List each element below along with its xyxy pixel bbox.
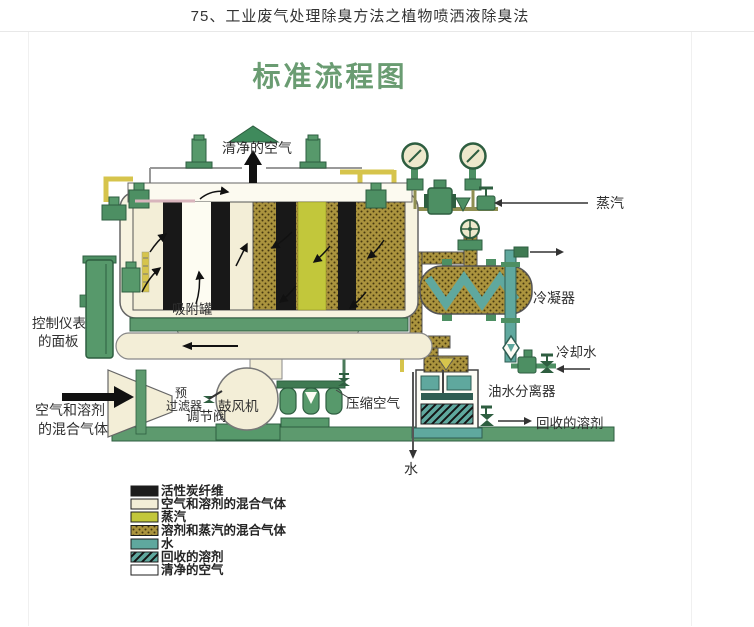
oil-water-separator — [409, 356, 532, 459]
label-control-panel-2: 的面板 — [38, 334, 79, 349]
carbon-fiber-bed — [211, 202, 230, 310]
label-condenser: 冷凝器 — [533, 290, 575, 306]
valve-icon — [518, 357, 536, 373]
label-inlet-gas-1: 空气和溶剂 — [35, 402, 105, 418]
solvent-arrow-icon — [524, 417, 532, 425]
article-page: 75、工业废气处理除臭方法之植物喷洒液除臭法 标准流程图 — [0, 0, 754, 627]
process-flow-diagram: 标准流程图 — [0, 0, 754, 627]
water-drain-arrow-icon — [409, 450, 417, 459]
label-clean-air: 清净的空气 — [222, 140, 292, 156]
label-pre-filter-2: 过滤器 — [166, 399, 202, 413]
cooling-water-arrow-icon — [556, 365, 564, 373]
label-recovered-solvent: 回收的溶剂 — [536, 416, 604, 431]
label-adsorption-tank: 吸附罐 — [172, 302, 213, 317]
compressed-air-unit — [277, 374, 352, 427]
carbon-fiber-bed — [276, 202, 296, 310]
legend-swatch-carbon — [131, 486, 158, 496]
control-panel — [80, 256, 116, 358]
legend-label: 溶剂和蒸汽的混合气体 — [161, 523, 287, 538]
legend-swatch-mixture — [131, 499, 158, 509]
label-cooling-water: 冷却水 — [556, 345, 597, 360]
legend-label: 蒸汽 — [161, 509, 187, 524]
label-compressed-air: 压缩空气 — [346, 396, 400, 411]
steam-valve-icon — [477, 188, 495, 210]
label-water: 水 — [404, 461, 418, 477]
label-oil-water-separator: 油水分离器 — [488, 383, 556, 399]
diagram-title: 标准流程图 — [252, 60, 407, 93]
legend-label: 清净的空气 — [161, 562, 224, 577]
legend-swatch-solvent-steam — [131, 526, 158, 536]
carbon-fiber-bed — [163, 202, 182, 310]
label-inlet-gas-2: 的混合气体 — [38, 421, 108, 437]
legend-swatch-clean-air — [131, 565, 158, 575]
label-steam: 蒸汽 — [596, 195, 624, 211]
carbon-fiber-bed — [338, 202, 356, 310]
legend-label: 活性炭纤维 — [161, 483, 224, 498]
legend-label: 回收的溶剂 — [161, 549, 224, 564]
control-valve-icon — [428, 188, 452, 214]
legend-label: 水 — [161, 536, 174, 551]
valve-icon — [480, 414, 494, 426]
legend-swatch-recovered-solvent — [131, 552, 158, 562]
outlet-arrow-icon — [556, 248, 564, 256]
gauge-valve-assembly — [403, 144, 589, 251]
legend-swatch-water — [131, 539, 158, 549]
label-pre-filter-1: 预 — [175, 386, 187, 400]
label-control-panel-1: 控制仪表 — [32, 316, 86, 331]
intake-section — [62, 333, 432, 440]
legend: 活性炭纤维 空气和溶剂的混合气体 蒸汽 溶剂和蒸汽的混合气体 水 回收的溶剂 清… — [131, 483, 287, 577]
fan-gauge-icon — [458, 220, 482, 250]
legend-swatch-steam — [131, 512, 158, 522]
legend-label: 空气和溶剂的混合气体 — [161, 496, 287, 511]
